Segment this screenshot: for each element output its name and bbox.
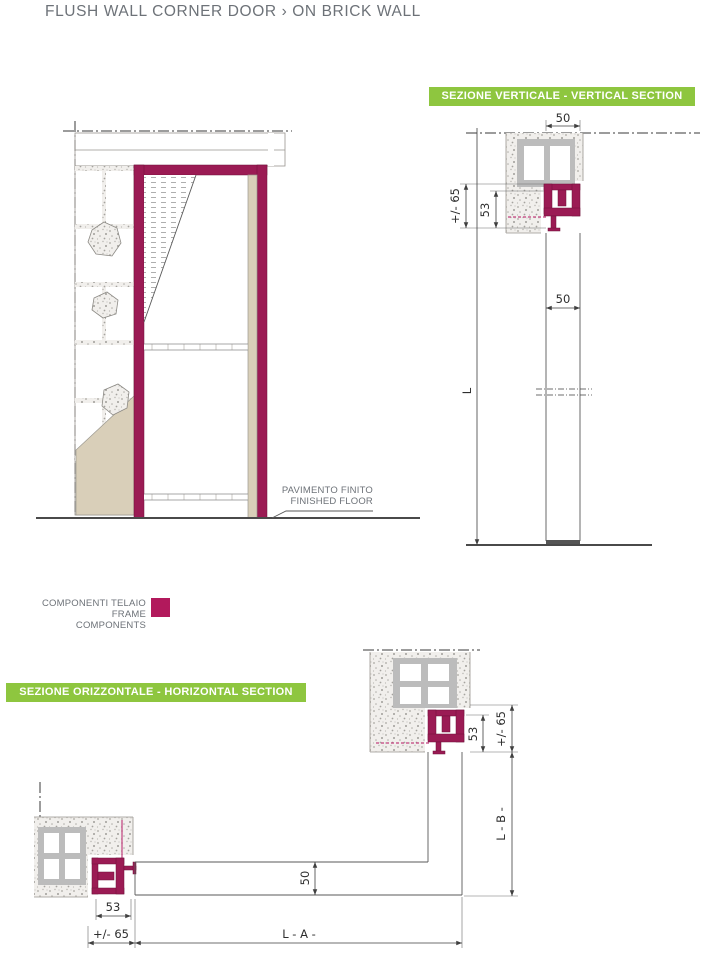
door-panel — [536, 233, 592, 544]
frame-components-legend: COMPONENTI TELAIO FRAME COMPONENTS — [40, 598, 170, 631]
dim-vs-frame-depth: 53 — [478, 203, 492, 218]
dim-hs-left-frame-total: +/- 65 — [93, 927, 129, 941]
door-edge-strip — [248, 175, 257, 518]
stone-blobs — [88, 222, 129, 415]
horizontal-section-drawing: 53 +/- 65 L - B - 50 53 +/- 65 L - A - — [34, 650, 518, 948]
dim-hs-left-frame-depth: 53 — [106, 900, 121, 914]
catalog-page: FLUSH WALL CORNER DOOR › ON BRICK WALL S… — [0, 0, 706, 961]
floor-label-english: FINISHED FLOOR — [290, 496, 373, 507]
hollow-block-left — [38, 827, 86, 885]
dim-hs-door-thickness: 50 — [298, 871, 312, 886]
wall-lintel-hatch — [75, 133, 285, 166]
legend-line-english: FRAME COMPONENTS — [40, 609, 146, 631]
door-crosspieces — [144, 344, 248, 500]
dim-hs-width-a: L - A - — [282, 927, 316, 941]
vertical-section-drawing: 50 +/- 65 53 L 50 — [448, 111, 700, 545]
frame-components-swatch — [151, 598, 170, 617]
dim-vs-frame-total: +/- 65 — [448, 188, 462, 224]
technical-drawing-canvas: PAVIMENTO FINITO FINISHED FLOOR — [0, 0, 706, 961]
hollow-block-top — [393, 658, 457, 708]
hollow-block — [517, 139, 575, 187]
elevation-drawing: PAVIMENTO FINITO FINISHED FLOOR — [36, 121, 420, 518]
dim-vs-height: L — [460, 387, 474, 394]
dim-hs-width-b: L - B - — [494, 807, 508, 841]
dim-hs-top-frame-total: +/- 65 — [494, 711, 508, 747]
dim-hs-top-frame-depth: 53 — [466, 727, 480, 742]
legend-line-italian: COMPONENTI TELAIO — [40, 598, 146, 609]
dim-vs-top-width: 50 — [556, 111, 571, 125]
dim-vs-door-thickness: 50 — [556, 292, 571, 306]
floor-label-italian: PAVIMENTO FINITO — [282, 485, 373, 496]
floor-leader — [272, 511, 373, 518]
